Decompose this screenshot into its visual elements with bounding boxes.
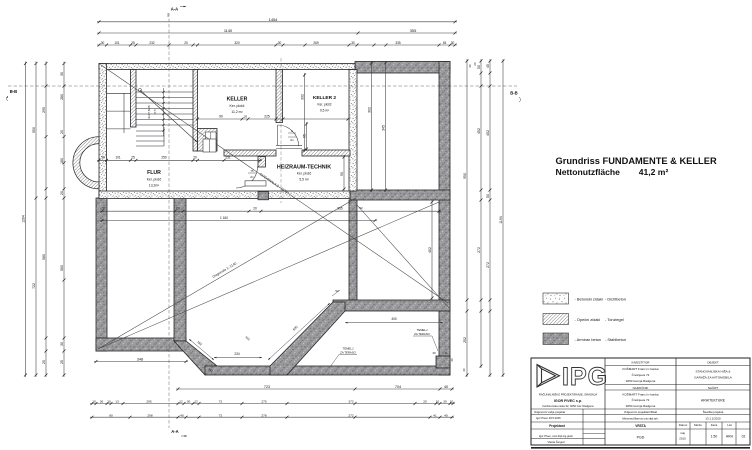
svg-text:HEIZRAUM-TECHNIK: HEIZRAUM-TECHNIK [277,165,331,171]
svg-text:335: 335 [395,41,401,45]
svg-text:30: 30 [278,41,282,45]
svg-text:Merilo: Merilo [694,423,702,427]
svg-text:Ferdorenska cesta 32, 9250 Gor: Ferdorenska cesta 32, 9250 Gor. Radgona [543,404,594,408]
svg-text:234: 234 [234,352,240,356]
svg-text:272: 272 [348,413,353,417]
svg-text:40: 40 [444,413,448,417]
svg-text:10: 10 [436,400,440,404]
svg-text:295: 295 [146,400,151,404]
svg-text:IPG: IPG [562,363,608,391]
svg-text:INVESTITOR: INVESTITOR [632,360,651,364]
svg-text:10: 10 [450,400,454,404]
svg-text:- Armiran beton: - Armiran beton [575,337,602,342]
svg-text:560: 560 [60,265,64,271]
svg-text:40: 40 [180,413,184,417]
svg-text:PGD: PGD [637,436,645,440]
svg-text:25: 25 [131,156,135,160]
svg-text:20: 20 [473,62,477,66]
svg-text:GARAŽA ZA AVTOMOBILA: GARAŽA ZA AVTOMOBILA [694,375,733,380]
svg-text:72: 72 [219,400,223,404]
svg-text:400: 400 [391,317,397,321]
svg-text:9250 Gornja Radgona: 9250 Gornja Radgona [626,404,656,408]
svg-text:269: 269 [313,41,319,45]
svg-text:1264: 1264 [22,215,26,223]
svg-text:1454: 1454 [269,17,278,22]
svg-text:101: 101 [115,156,121,160]
svg-text:A-A: A-A [171,429,178,434]
svg-text:FLUR: FLUR [147,170,161,176]
svg-text:Igor Pivec 29.5.2026: Igor Pivec 29.5.2026 [536,416,561,420]
svg-text:Ker. plošč: Ker. plošč [318,103,332,107]
svg-text:B-B: B-B [510,91,517,96]
svg-text:152: 152 [244,335,251,341]
svg-text:45: 45 [443,41,447,45]
svg-text:9,5 m²: 9,5 m² [320,109,329,113]
svg-text:Nettonutzfläche: Nettonutzfläche [556,167,621,177]
svg-text:OBJEKT: OBJEKT [707,360,719,364]
svg-text:10: 10 [444,351,448,355]
svg-text:10: 10 [107,400,111,404]
svg-text:2010: 2010 [679,436,686,440]
svg-text:580: 580 [42,254,46,260]
svg-text:maj: maj [680,431,685,435]
svg-text:25: 25 [42,360,46,364]
svg-text:80: 80 [109,413,113,417]
svg-text:Grundriss FUNDAMENTE & KELLER: Grundriss FUNDAMENTE & KELLER [556,156,717,166]
svg-text:- Opečni zidaki: - Opečni zidaki [575,317,601,322]
svg-text:13.1.1/2010: 13.1.1/2010 [705,416,721,420]
svg-text:KELLER: KELLER [227,97,248,103]
svg-text:30: 30 [101,156,105,160]
svg-text:5,5 m²: 5,5 m² [299,178,309,182]
svg-text:50: 50 [477,65,481,69]
svg-text:30: 30 [443,400,447,404]
svg-text:30: 30 [60,342,64,346]
svg-text:ZA TERASO: ZA TERASO [414,332,430,336]
svg-text:278: 278 [261,413,266,417]
svg-text:275: 275 [261,400,266,404]
svg-text:Črešnjeva 72: Črešnjeva 72 [632,372,650,377]
svg-text:9250 Gornja Radgona: 9250 Gornja Radgona [626,379,656,383]
svg-text:2m: 2m [250,175,254,179]
svg-text:11,2 m²: 11,2 m² [231,110,243,114]
svg-text:ARHITEKTURE: ARHITEKTURE [701,399,726,403]
svg-text:320: 320 [234,41,240,45]
svg-text:722: 722 [32,283,36,289]
svg-text:280: 280 [60,94,64,100]
svg-text:ARH: ARH [726,435,734,439]
svg-text:41: 41 [433,413,437,417]
svg-text:80: 80 [176,207,180,211]
svg-text:30: 30 [100,400,104,404]
svg-text:40: 40 [444,385,448,389]
svg-text:- Tonziegel: - Tonziegel [605,317,624,322]
svg-text:345: 345 [382,125,386,131]
svg-text:- Stahlbeton: - Stahlbeton [605,337,626,342]
svg-text:Črešnjeva 72: Črešnjeva 72 [632,397,650,402]
svg-text:252: 252 [463,337,467,343]
svg-text:695: 695 [292,325,299,332]
svg-text:251: 251 [225,156,231,160]
svg-text:45: 45 [486,64,490,68]
svg-text:Igor Pivec, univ.dipl.ing.grad: Igor Pivec, univ.dipl.ing.grad. [539,434,574,438]
svg-text:452: 452 [486,130,490,136]
svg-text:Projektant: Projektant [549,424,566,428]
svg-text:1194: 1194 [499,216,503,224]
svg-text:12: 12 [179,400,183,404]
svg-text:402: 402 [428,247,432,253]
svg-text:372: 372 [348,400,353,404]
svg-text:2m: 2m [290,138,294,142]
svg-text:30: 30 [451,41,455,45]
svg-text:ZA TERASO: ZA TERASO [340,351,356,355]
svg-text:348: 348 [137,358,143,362]
svg-text:13,2m²: 13,2m² [149,184,160,188]
svg-text:B-B: B-B [10,89,17,94]
svg-text:02: 02 [742,435,746,439]
svg-text:295: 295 [42,107,46,113]
svg-text:A-A: A-A [171,7,178,12]
svg-text:272: 272 [477,247,481,253]
svg-text:90: 90 [340,172,344,176]
svg-text:Vlasta Čergud: Vlasta Čergud [547,439,565,444]
svg-text:30: 30 [60,72,64,76]
svg-text:VRSTA: VRSTA [635,424,646,428]
svg-text:298: 298 [147,413,152,417]
svg-text:10: 10 [92,400,96,404]
svg-text:355: 355 [410,28,417,33]
svg-text:950: 950 [463,173,467,179]
svg-text:13: 13 [115,400,119,404]
svg-text:30: 30 [187,400,191,404]
svg-text:NAROČNIK: NAROČNIK [633,385,649,390]
svg-text:IGOR PIVEC s.p.: IGOR PIVEC s.p. [554,399,582,403]
svg-text:250: 250 [161,156,167,160]
svg-text:- Betonski zidaki: - Betonski zidaki [575,297,603,302]
svg-text:452: 452 [477,128,481,134]
svg-text:Odgovorni projektant/Risal: Odgovorni projektant/Risal [624,410,657,414]
svg-text:332: 332 [301,94,305,100]
svg-text:182: 182 [196,340,203,347]
svg-text:72: 72 [219,413,223,417]
svg-text:9x17,5/28: 9x17,5/28 [147,105,151,119]
svg-text:Številka projekta: Številka projekta [703,409,724,414]
svg-text:20: 20 [244,114,248,118]
svg-text:Metomed Barnus univ.dipl.arh.: Metomed Barnus univ.dipl.arh. [622,416,659,420]
svg-text:30: 30 [432,351,436,355]
svg-text:- Dichtbeton: - Dichtbeton [605,297,626,302]
svg-text:Diagonala 1: 1140: Diagonala 1: 1140 [212,261,238,279]
svg-text:30: 30 [351,41,355,45]
svg-text:550: 550 [32,127,36,133]
svg-text:20: 20 [193,156,197,160]
svg-text:STANOVANJSKA HIŠA &: STANOVANJSKA HIŠA & [696,368,732,373]
svg-text:List: List [727,423,732,427]
svg-text:1:50: 1:50 [711,435,718,439]
svg-text:Ker. plošč: Ker. plošč [297,172,312,176]
svg-text:m: m [291,130,293,133]
svg-text:NAČRT: NAČRT [708,385,718,390]
svg-text:Ker. plošč: Ker. plošč [230,104,245,108]
svg-text:180: 180 [60,158,64,164]
svg-text:302: 302 [368,107,372,113]
svg-text:KOŠMART Franc in Ivanka: KOŠMART Franc in Ivanka [622,391,658,396]
svg-text:40: 40 [462,368,466,372]
svg-text:KOŠMART Franc in Ivanka: KOŠMART Franc in Ivanka [622,366,658,371]
svg-text:Odgovorni vodja projekta: Odgovorni vodja projekta [534,410,566,414]
svg-text:20: 20 [253,207,257,211]
svg-text:52: 52 [359,206,363,210]
svg-text:30: 30 [102,207,106,211]
svg-text:232: 232 [149,41,155,45]
svg-text:20: 20 [60,191,64,195]
svg-text:KELLER 2: KELLER 2 [313,95,337,101]
svg-text:Ker. plošč: Ker. plošč [147,178,162,182]
svg-text:965: 965 [337,207,343,211]
svg-text:Datum: Datum [679,423,688,427]
svg-text:30: 30 [468,64,472,68]
svg-text:20: 20 [184,41,188,45]
svg-text:1 160: 1 160 [220,216,228,220]
svg-text:17,5: 17,5 [153,109,157,115]
svg-text:25: 25 [60,360,64,364]
svg-text:20: 20 [423,400,427,404]
svg-text:Faza: Faza [711,423,718,427]
svg-text:90: 90 [219,114,223,118]
svg-text:723: 723 [264,385,270,389]
svg-text:12: 12 [194,400,198,404]
svg-text:704: 704 [395,385,401,389]
svg-text:RAČUNALNIŠKO PROJEKTIRANJE, GR: RAČUNALNIŠKO PROJEKTIRANJE, GRADNJA [539,392,597,397]
svg-text:272: 272 [486,262,490,268]
svg-text:50: 50 [486,194,490,198]
svg-text:20: 20 [60,130,64,134]
svg-text:225: 225 [264,114,270,118]
svg-text:30: 30 [101,41,105,45]
svg-text:41,2 m²: 41,2 m² [639,167,669,177]
svg-text:1140: 1140 [224,28,233,33]
svg-text:25: 25 [131,41,135,45]
svg-text:30: 30 [450,358,454,362]
svg-text:101: 101 [114,41,120,45]
